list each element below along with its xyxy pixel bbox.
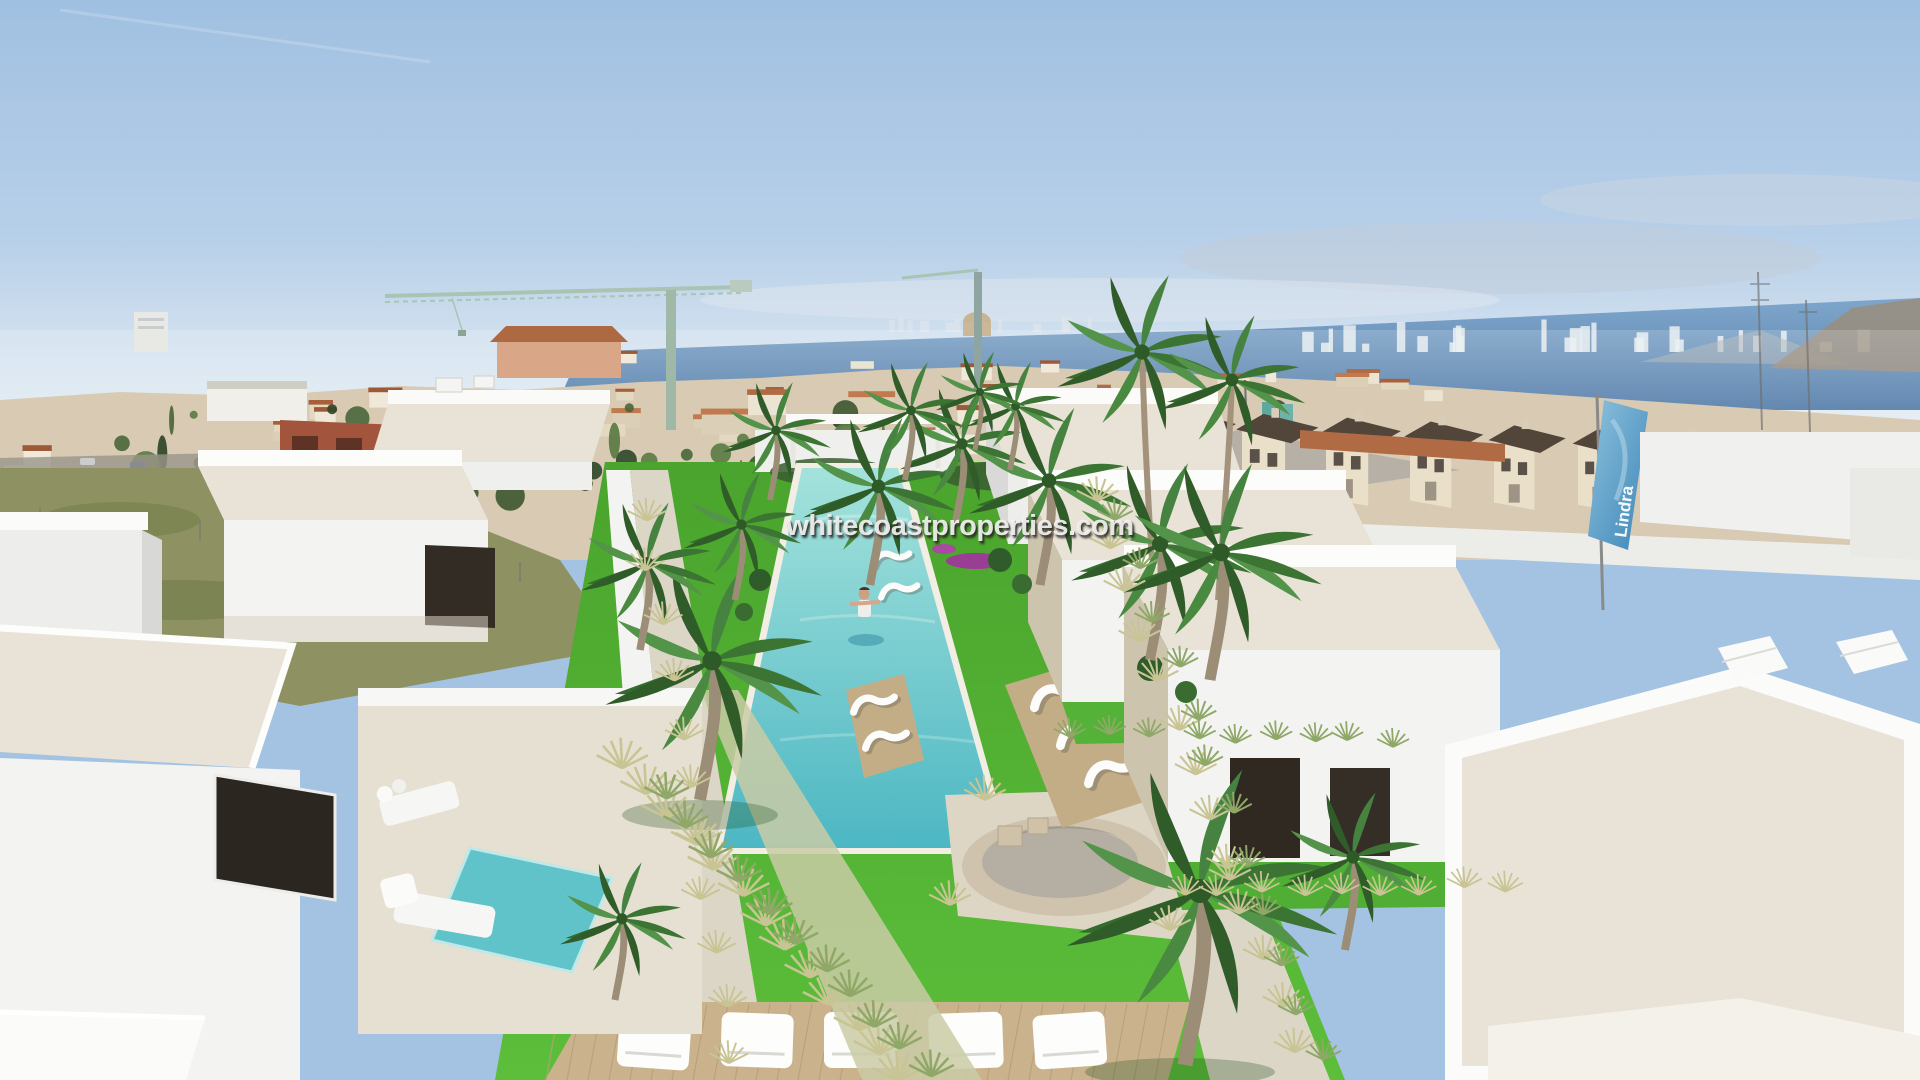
window: [215, 775, 335, 900]
scene-illustration: Lindra: [0, 0, 1920, 1080]
window: [425, 545, 495, 628]
villa: [198, 450, 495, 642]
haze-band: [700, 278, 1500, 322]
warehouse: [207, 387, 307, 421]
flowerbed: [932, 544, 956, 554]
stool: [1028, 818, 1048, 834]
stool: [998, 826, 1022, 846]
villa-roof-foreground: [1445, 630, 1920, 1080]
pink-building: [497, 342, 621, 378]
chimney: [1836, 630, 1908, 674]
window: [1330, 768, 1390, 856]
property-render: Lindra: [0, 0, 1920, 1080]
